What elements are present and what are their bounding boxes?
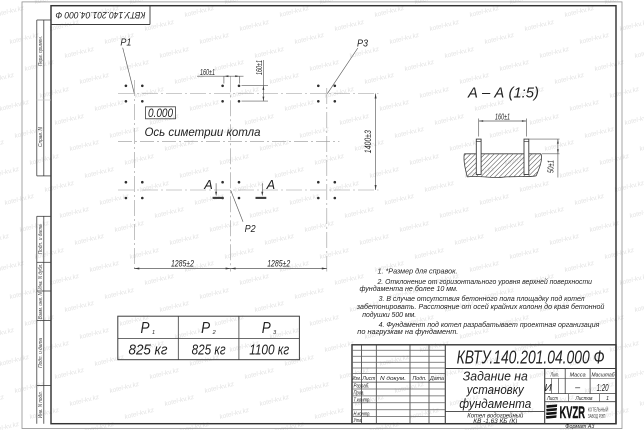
svg-text:Лит.: Лит. xyxy=(550,373,560,379)
svg-text:50±1: 50±1 xyxy=(547,160,556,173)
svg-text:КВ -1,63 КБ (К): КВ -1,63 КБ (К) xyxy=(473,419,517,425)
svg-text:А: А xyxy=(203,177,212,192)
svg-text:1400±3: 1400±3 xyxy=(363,130,373,153)
svg-text:КВТУ.140.201.04.000 Ф: КВТУ.140.201.04.000 Ф xyxy=(56,10,146,20)
svg-text:Инв. N дубл.: Инв. N дубл. xyxy=(38,264,44,290)
svg-text:Р2: Р2 xyxy=(245,223,256,235)
svg-text:Лист: Лист xyxy=(546,396,558,402)
svg-text:А: А xyxy=(266,177,275,192)
svg-text:Листов: Листов xyxy=(575,396,593,402)
svg-text:1285±2: 1285±2 xyxy=(267,259,290,269)
svg-text:0.000: 0.000 xyxy=(148,106,173,120)
svg-text:Пров.: Пров. xyxy=(354,391,365,397)
svg-text:по нагрузкам на фундамент.: по нагрузкам на фундамент. xyxy=(357,327,458,336)
svg-text:Дата: Дата xyxy=(429,376,444,382)
svg-text:Подп.: Подп. xyxy=(413,376,427,382)
svg-text:А – А (1:5): А – А (1:5) xyxy=(467,84,539,101)
svg-text:160±1: 160±1 xyxy=(495,113,510,122)
svg-text:И: И xyxy=(545,383,553,394)
svg-text:Масштаб: Масштаб xyxy=(592,373,616,379)
svg-text:Р: Р xyxy=(141,320,151,337)
svg-text:–: – xyxy=(574,382,581,392)
svg-text:Изм.: Изм. xyxy=(352,376,361,382)
svg-text:Р3: Р3 xyxy=(357,37,368,49)
svg-text:Справ. N: Справ. N xyxy=(38,127,44,147)
svg-text:Т.контр.: Т.контр. xyxy=(354,398,371,404)
svg-text:Подп. и дата: Подп. и дата xyxy=(38,224,44,254)
svg-text:160±1: 160±1 xyxy=(200,68,215,77)
svg-text:1285±2: 1285±2 xyxy=(171,259,194,269)
svg-text:Перв. примен.: Перв. примен. xyxy=(38,36,44,66)
svg-text:Взам. инв. N: Взам. инв. N xyxy=(38,292,44,319)
svg-text:Инв. N подл.: Инв. N подл. xyxy=(38,391,44,418)
svg-text:1:20: 1:20 xyxy=(597,382,609,394)
svg-text:2: 2 xyxy=(212,330,216,336)
svg-text:KVZR: KVZR xyxy=(560,404,586,422)
svg-text:КВТУ.140.201.04.000 Ф: КВТУ.140.201.04.000 Ф xyxy=(457,347,605,368)
svg-text:Н.контр.: Н.контр. xyxy=(354,411,371,417)
svg-text:КОТЕЛЬНЫЙ: КОТЕЛЬНЫЙ xyxy=(588,406,609,414)
svg-text:N докум.: N докум. xyxy=(380,376,406,382)
svg-text:Р: Р xyxy=(201,320,211,337)
svg-text:фундамента: фундамента xyxy=(459,396,531,411)
svg-text:Лист: Лист xyxy=(361,376,375,382)
svg-text:825 кг: 825 кг xyxy=(192,342,226,359)
svg-text:подушки 500 мм.: подушки 500 мм. xyxy=(362,310,416,319)
svg-text:1: 1 xyxy=(152,330,155,336)
svg-text:фундамента не более 10 мм.: фундамента не более 10 мм. xyxy=(360,284,459,293)
svg-text:Ось симетрии котла: Ось симетрии котла xyxy=(145,125,261,139)
svg-text:Р1: Р1 xyxy=(120,37,131,49)
svg-text:Подп. и дата: Подп. и дата xyxy=(38,338,44,368)
svg-text:1100 кг: 1100 кг xyxy=(249,342,289,359)
svg-text:ЗАВОД РЭП: ЗАВОД РЭП xyxy=(588,414,606,420)
svg-text:1. *Размер для справок.: 1. *Размер для справок. xyxy=(378,267,458,276)
svg-text:825 кг: 825 кг xyxy=(129,342,169,359)
svg-text:Масса: Масса xyxy=(570,373,586,379)
svg-text:Разраб.: Разраб. xyxy=(354,384,370,390)
svg-text:160±1: 160±1 xyxy=(255,60,264,75)
svg-text:1: 1 xyxy=(606,396,609,402)
svg-text:Формат А3: Формат А3 xyxy=(565,424,595,430)
svg-text:Р: Р xyxy=(262,320,272,337)
svg-text:Утв.: Утв. xyxy=(353,418,363,424)
